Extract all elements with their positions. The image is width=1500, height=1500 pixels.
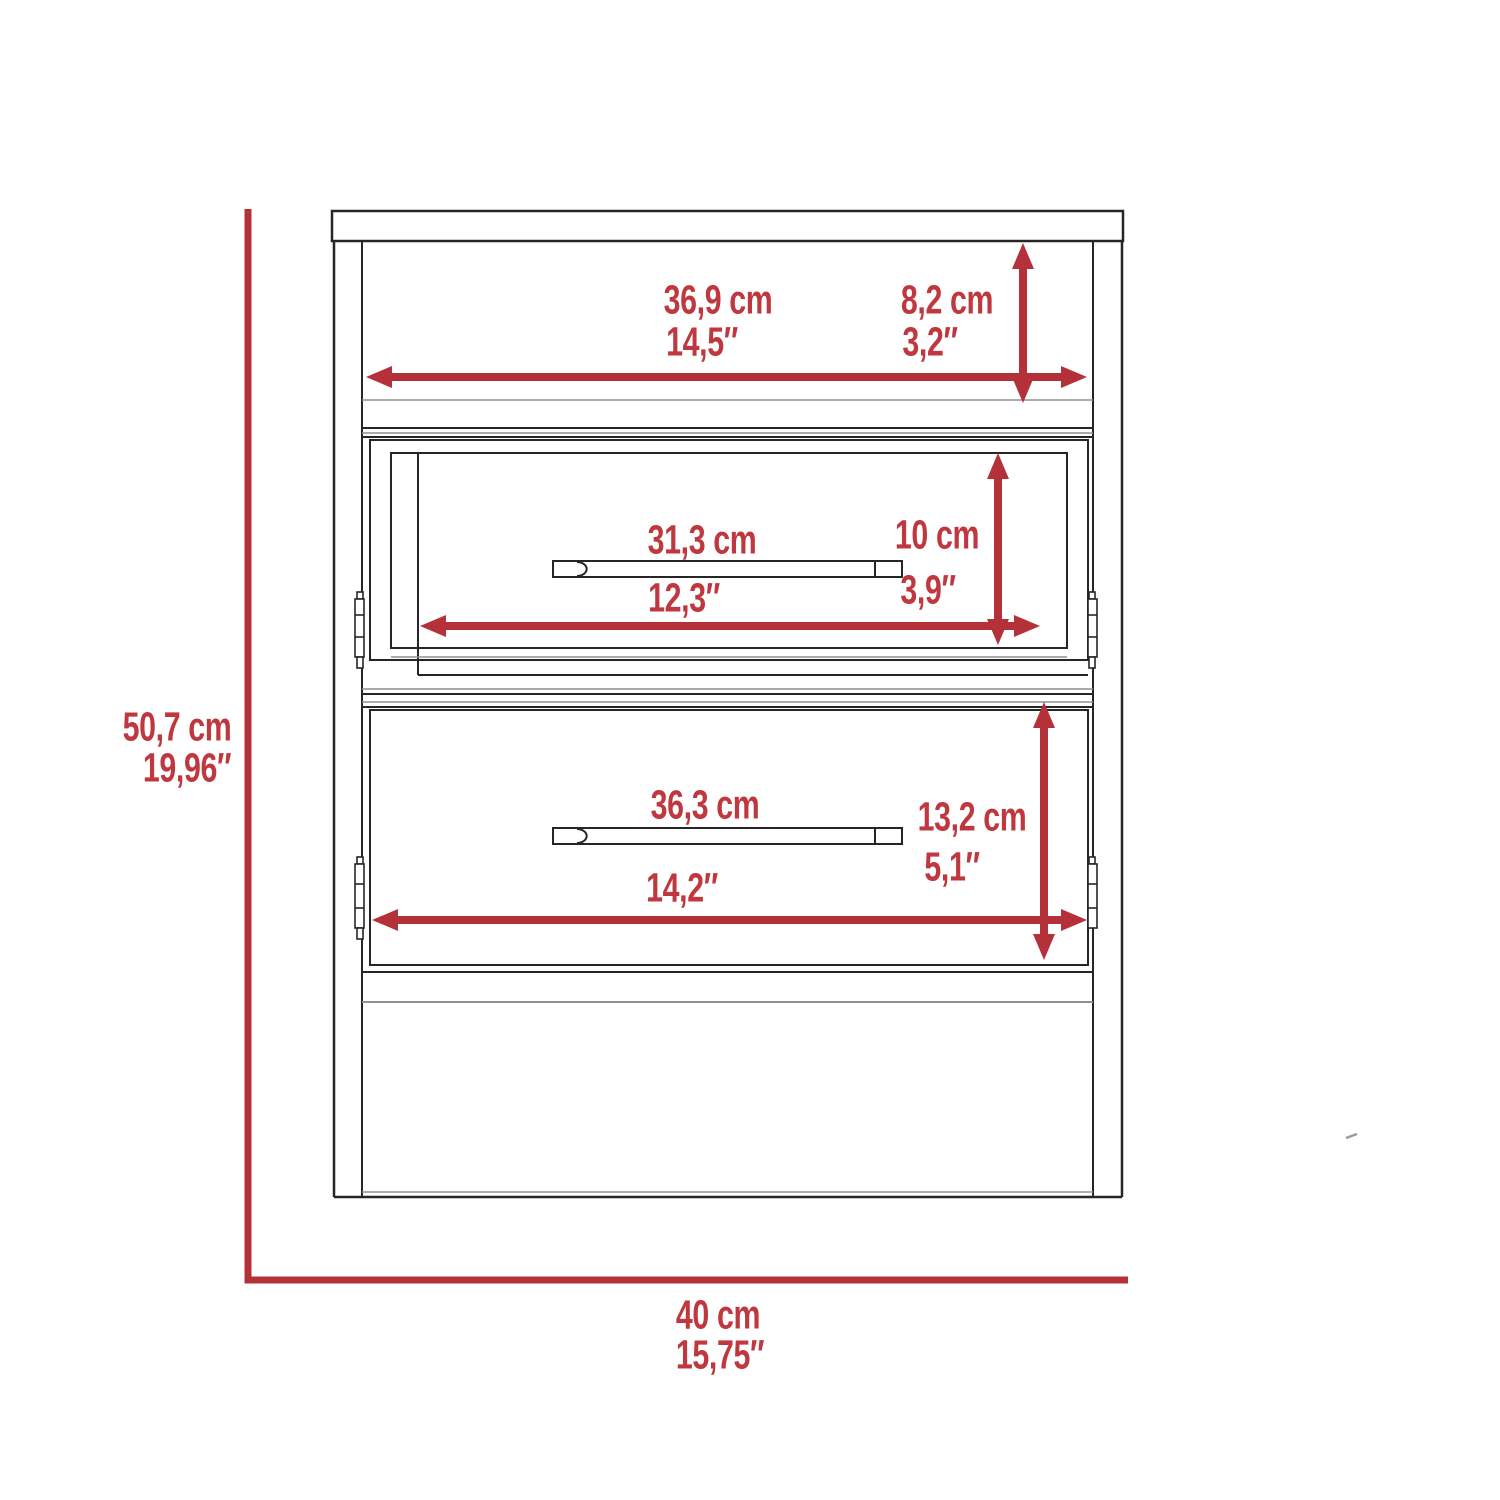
dim-label-overall-height-cm: 50,7 cm — [123, 707, 232, 748]
dim-label-lower-drawer-height-cm: 13,2 cm — [918, 797, 1027, 838]
arrow-lower-drawer-width — [372, 909, 1087, 931]
dim-label-top-shelf-height-in: 3,2″ — [902, 322, 957, 363]
cabinet-top-panel — [332, 211, 1123, 241]
dim-label-top-shelf-width-in: 14,5″ — [666, 322, 738, 363]
cabinet-outline — [332, 211, 1357, 1197]
dim-label-top-shelf-width-cm: 36,9 cm — [664, 280, 773, 321]
dim-label-upper-drawer-height-cm: 10 cm — [895, 515, 979, 556]
drawer2-slide-right — [1088, 857, 1097, 928]
arrow-upper-drawer-width — [420, 615, 1040, 637]
drawer1-slide-right — [1088, 592, 1097, 668]
arrow-top-shelf-height — [1012, 243, 1034, 403]
arrow-top-shelf-width — [366, 366, 1087, 388]
drawer2-handle — [553, 828, 902, 844]
drawer2-slide-left — [355, 857, 364, 939]
dim-label-upper-drawer-width-cm: 31,3 cm — [648, 520, 757, 561]
overall-extent-line — [248, 209, 1128, 1280]
stray-mark — [1346, 1134, 1357, 1138]
dimension-diagram: 36,9 cm 14,5″ 8,2 cm 3,2″ 31,3 cm 12,3″ … — [0, 0, 1500, 1500]
dim-label-lower-drawer-width-cm: 36,3 cm — [651, 785, 760, 826]
dimension-lines — [248, 209, 1128, 1280]
dim-label-upper-drawer-width-in: 12,3″ — [648, 578, 720, 619]
arrow-upper-drawer-height — [987, 453, 1009, 645]
dim-label-overall-width-in: 15,75″ — [676, 1335, 764, 1376]
dim-label-overall-height-in: 19,96″ — [143, 748, 231, 789]
dim-label-lower-drawer-width-in: 14,2″ — [646, 868, 718, 909]
drawer1-slide-left — [355, 592, 364, 668]
dim-label-upper-drawer-height-in: 3,9″ — [900, 570, 955, 611]
drawer1-handle — [553, 561, 902, 577]
dim-label-overall-width-cm: 40 cm — [676, 1295, 760, 1336]
dim-label-lower-drawer-height-in: 5,1″ — [924, 847, 979, 888]
dim-label-top-shelf-height-cm: 8,2 cm — [901, 280, 993, 321]
